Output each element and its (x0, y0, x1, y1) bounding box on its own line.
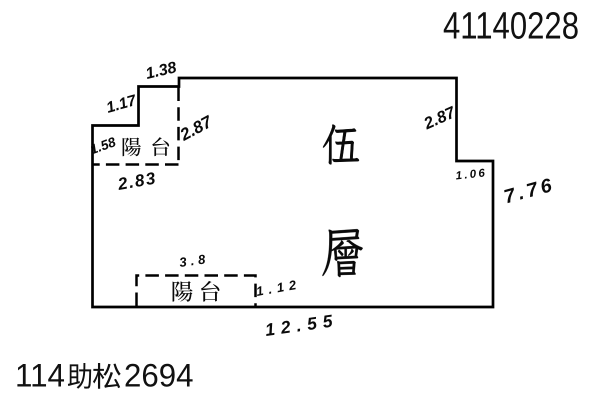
svg-text:41140228: 41140228 (443, 6, 579, 48)
svg-text:114: 114 (15, 358, 65, 394)
svg-text:2694: 2694 (124, 358, 194, 394)
